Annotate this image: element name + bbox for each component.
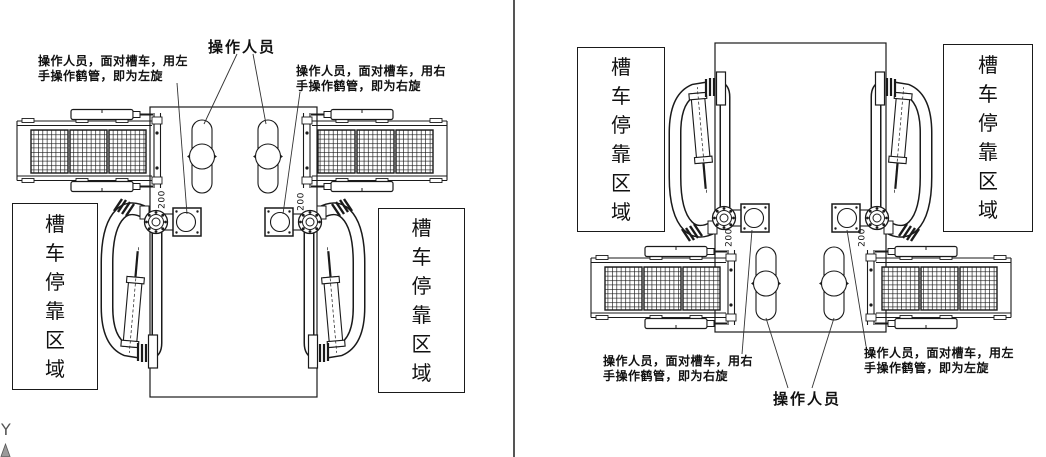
loading-arm (675, 72, 769, 241)
note-line-2: 手操作鹤管，即为右旋 (296, 79, 446, 94)
tanker-gangway (591, 247, 736, 329)
operator-label: 操作人员 (773, 388, 841, 409)
parking-area-box: 槽车停靠区域 (943, 44, 1033, 232)
tanker-gangway (302, 110, 447, 192)
tanker-gangway (17, 110, 162, 192)
y-axis-icon: Y (0, 420, 11, 457)
operator-label: 操作人员 (208, 36, 276, 57)
note-line-1: 操作人员，面对槽车，用左 (38, 54, 188, 69)
tanker-gangway (866, 247, 1011, 329)
platform-outline-right-drawing (715, 43, 886, 332)
operator-figure (254, 120, 282, 193)
parking-area-text: 槽车停靠区域 (42, 210, 68, 384)
note-line-1: 操作人员，面对槽车，用右 (603, 354, 753, 369)
left-hand-note: 操作人员，面对槽车，用左 手操作鹤管，即为左旋 (38, 54, 188, 83)
dimension-200: 200 (858, 227, 869, 249)
note-line-2: 手操作鹤管，即为左旋 (864, 361, 1014, 376)
left-hand-note: 操作人员，面对槽车，用左 手操作鹤管，即为左旋 (864, 346, 1014, 375)
operator-figure (752, 247, 780, 320)
dimension-200: 200 (158, 189, 169, 211)
right-hand-note: 操作人员，面对槽车，用右 手操作鹤管，即为右旋 (603, 354, 753, 383)
dimension-200: 200 (725, 227, 736, 249)
operator-figure (188, 120, 216, 193)
loading-arm (107, 199, 201, 368)
cad-drawing-canvas: Y 操作人员 操作人员，面对槽车，用左 手操作鹤管，即为左旋 操作人员，面对槽车… (0, 0, 1046, 457)
parking-area-text: 槽车停靠区域 (409, 214, 435, 388)
note-line-2: 手操作鹤管，即为右旋 (603, 369, 753, 384)
note-line-2: 手操作鹤管，即为左旋 (38, 69, 188, 84)
right-hand-note: 操作人员，面对槽车，用右 手操作鹤管，即为右旋 (296, 64, 446, 93)
note-line-1: 操作人员，面对槽车，用右 (296, 64, 446, 79)
parking-area-text: 槽车停靠区域 (608, 53, 634, 227)
loading-arm (832, 72, 926, 241)
parking-area-box: 槽车停靠区域 (12, 203, 98, 390)
parking-area-text: 槽车停靠区域 (975, 51, 1001, 225)
parking-area-box: 槽车停靠区域 (378, 208, 465, 393)
y-axis-label: Y (0, 420, 11, 439)
parking-area-box: 槽车停靠区域 (577, 47, 665, 232)
operator-figure (820, 247, 848, 320)
dimension-200: 200 (297, 191, 308, 213)
loading-arm (265, 199, 359, 368)
note-line-1: 操作人员，面对槽车，用左 (864, 346, 1014, 361)
